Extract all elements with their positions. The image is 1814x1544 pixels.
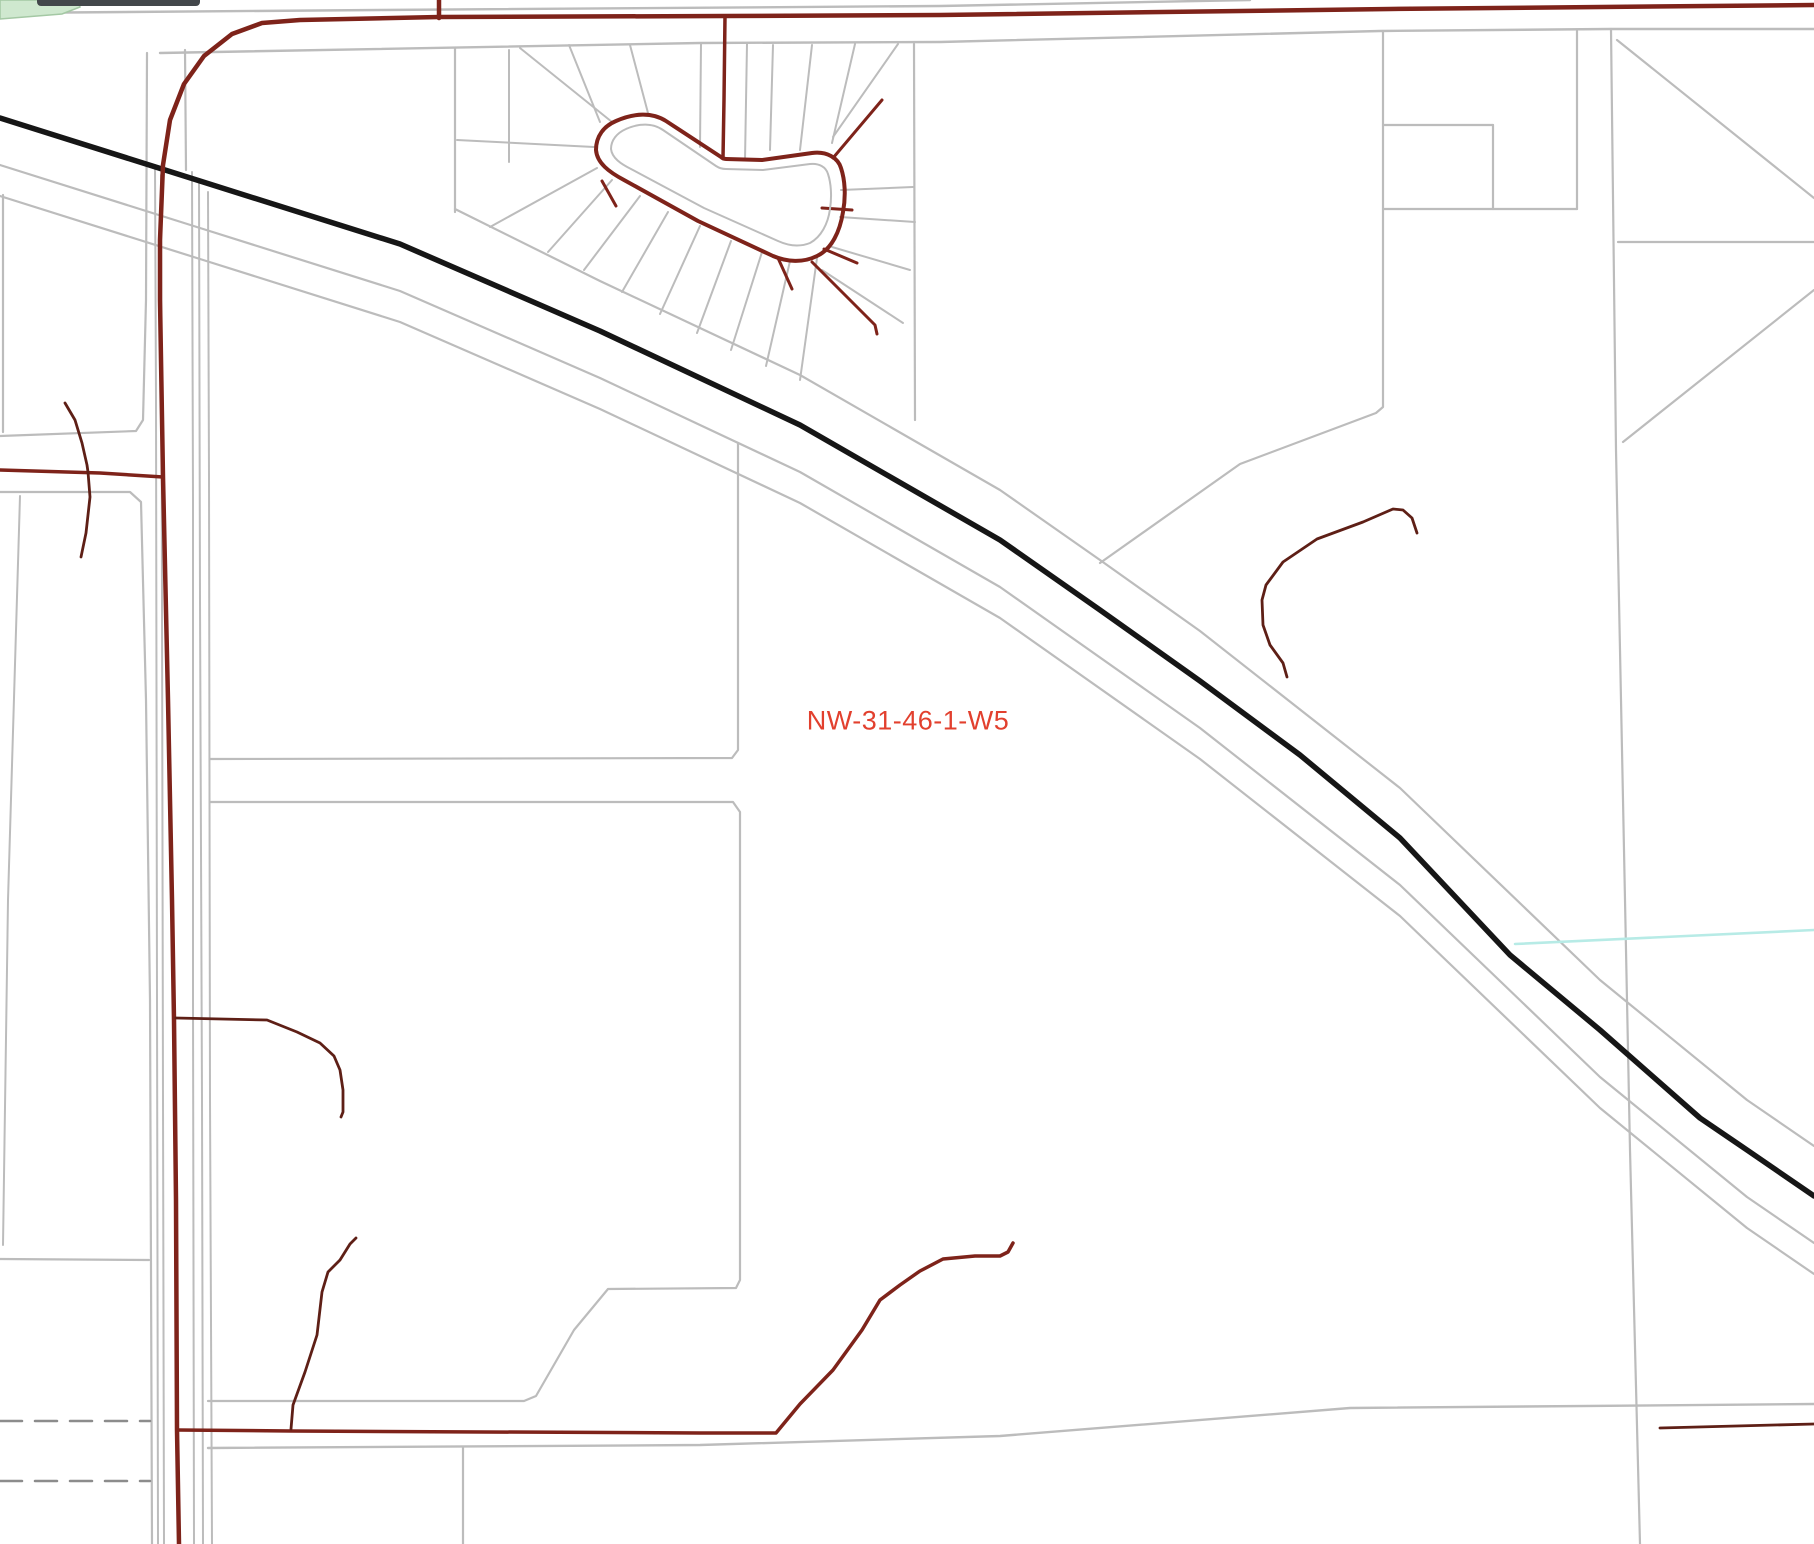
road-edge-right-a (192, 172, 194, 1544)
driveway-spur-3 (824, 249, 857, 263)
lot-spoke-6 (770, 45, 773, 150)
culdesac-loop-road (596, 115, 845, 261)
road-culdesac-access (723, 16, 725, 158)
lot-spoke-8 (832, 44, 855, 143)
parcel-diagonal-ne-1 (1617, 40, 1814, 198)
parcel-diagonal-ne-2 (1623, 290, 1814, 442)
parcel-line-long-vert (1100, 31, 1383, 563)
road-edge-left-b (155, 165, 158, 1544)
lot-spoke-2 (569, 45, 600, 122)
parcel-line-bottom-long (208, 1404, 1814, 1448)
trail-west-cross (65, 403, 90, 557)
map-layers (0, 0, 1814, 1544)
lot-spoke-13 (584, 196, 640, 270)
toolbar-fragment (37, 0, 200, 6)
railway-line (0, 118, 1814, 1196)
lot-spoke-1 (520, 48, 612, 122)
lot-spoke-7 (800, 45, 812, 150)
section-label: NW-31-46-1-W5 (807, 706, 1010, 737)
lot-spoke-9 (833, 44, 898, 137)
lot-spoke-19 (800, 258, 817, 380)
parcel-line-west-horiz (0, 1259, 149, 1260)
road-edge-right-c (208, 192, 212, 1544)
lot-spoke-17 (731, 252, 762, 350)
lot-spoke-15 (660, 226, 700, 314)
lot-spoke-10 (457, 140, 594, 147)
road-cross-west (0, 470, 163, 477)
map-viewport[interactable]: NW-31-46-1-W5 (0, 0, 1814, 1544)
parcel-line-center-upper (210, 443, 738, 759)
parcel-line-left-block (0, 53, 147, 436)
parcel-line-bend-inner (185, 50, 186, 170)
lot-spoke-20 (841, 187, 913, 190)
parcel-line-west-slant (3, 496, 20, 1245)
parcel-line-east-vert (1611, 29, 1640, 1544)
parcel-line-top-b (160, 29, 1814, 53)
road-main-north-west (160, 5, 1814, 1544)
parcel-line-left-low (0, 492, 152, 1544)
lot-spoke-3 (630, 45, 648, 113)
road-south (177, 1243, 1013, 1433)
lot-spoke-4 (700, 44, 701, 147)
road-segment-southeast (1660, 1424, 1814, 1428)
culdesac-inner-edge (611, 125, 831, 246)
lot-spoke-23 (822, 270, 903, 323)
parcel-line-center-lower (208, 802, 740, 1401)
lot-spoke-21 (840, 217, 915, 222)
highway-edge-lower-a (0, 165, 1814, 1243)
highway-edge-upper (455, 209, 1814, 1146)
lot-spoke-11 (490, 168, 597, 227)
lot-spoke-16 (697, 241, 731, 333)
map-canvas-svg[interactable] (0, 0, 1814, 1544)
lot-spoke-14 (622, 212, 668, 292)
driveway-spur-2 (822, 208, 852, 210)
lot-spoke-5 (745, 44, 747, 160)
road-edge-right-b (199, 182, 203, 1544)
trail-east (1262, 509, 1417, 677)
block-boundary-east (914, 44, 915, 420)
waterline (1515, 930, 1814, 944)
driveway-spur-4 (812, 262, 877, 334)
